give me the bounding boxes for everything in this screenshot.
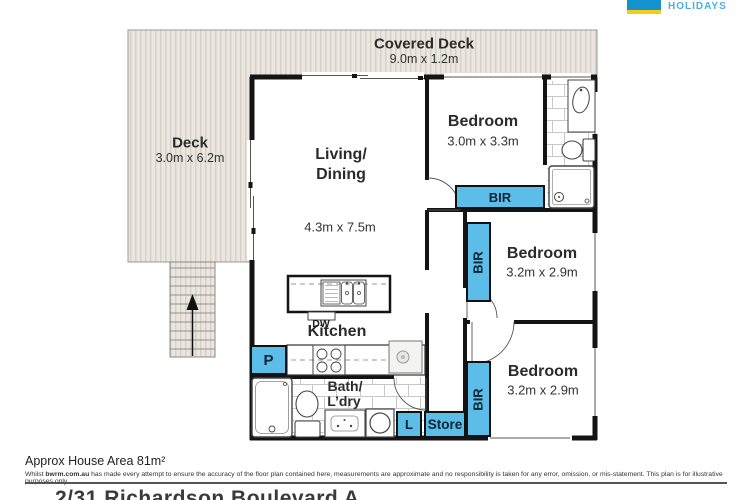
covered-deck-sliding-door [302, 72, 424, 81]
covered-deck-label: Covered Deck [374, 36, 474, 53]
brand-logo-text: HOLIDAYS [668, 1, 727, 12]
brand-logo-icon [627, 0, 661, 10]
living-label-line2: Dining [316, 166, 366, 184]
laundry-vanity-icon [325, 410, 365, 437]
bedroom1-label: Bedroom [448, 113, 518, 131]
robe-label: BIR [489, 190, 511, 205]
bedroom1-dims: 3.0m x 3.3m [447, 134, 519, 149]
robe-label: BIR [471, 388, 486, 410]
bedroom3-south-window [488, 434, 572, 442]
bedroom3-east-window [591, 348, 599, 416]
house-area-text: Approx House Area 81m² [25, 454, 165, 468]
robe-label: BIR [471, 251, 486, 273]
bedroom1-window [444, 73, 542, 81]
disclaimer-site: bwrm.com.au [45, 471, 89, 478]
bedroom3-robe: BIR [466, 361, 491, 437]
bath-label-line2: L’dry [327, 393, 360, 409]
deck-dims: 3.0m x 6.2m [156, 151, 225, 165]
covered-deck-dims: 9.0m x 1.2m [390, 52, 459, 66]
store-label: Store [428, 417, 463, 432]
ensuite-vanity-icon [568, 80, 595, 132]
bedroom1-robe: BIR [455, 185, 545, 209]
deck-label: Deck [172, 135, 208, 152]
store-box: Store [424, 411, 466, 438]
brand-logo-accent-strip [627, 10, 661, 14]
bathtub-icon [252, 378, 292, 437]
bedroom2-dims: 3.2m x 2.9m [506, 265, 578, 280]
disclaimer-prefix: Whilst [25, 471, 45, 478]
washing-machine-icon [366, 409, 394, 437]
deck-sliding-door [247, 140, 257, 260]
bedroom3-label: Bedroom [508, 363, 578, 381]
dishwasher-label: DW [312, 318, 330, 330]
linen-label: L [405, 417, 413, 432]
floorplan-page: BIR BIR BIR P L Store Covered Deck 9.0m … [0, 0, 750, 500]
oven-icon [389, 341, 422, 373]
bath-label-line1: Bath/ [328, 378, 363, 394]
pantry-label: P [263, 352, 273, 369]
bedroom2-robe: BIR [466, 222, 491, 302]
living-label-line1: Living/ [315, 146, 367, 164]
floorplan-drawing [0, 0, 750, 500]
footer-divider [25, 482, 727, 484]
bedroom3-dims: 3.2m x 2.9m [507, 383, 579, 398]
pantry-box: P [250, 345, 287, 375]
bedroom2-label: Bedroom [507, 245, 577, 263]
address-heading: 2/31 Richardson Boulevard A [55, 487, 359, 500]
bedroom2-window [591, 233, 599, 291]
shower-icon [549, 166, 594, 208]
linen-box: L [396, 411, 422, 438]
living-dims: 4.3m x 7.5m [304, 220, 376, 235]
kitchen-bench [287, 341, 425, 375]
